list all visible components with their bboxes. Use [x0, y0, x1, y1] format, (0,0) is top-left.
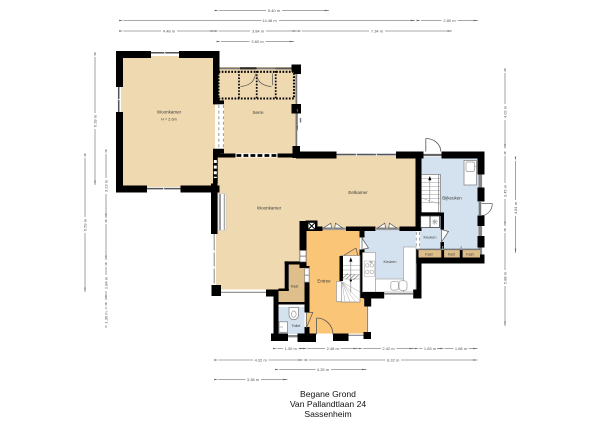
svg-text:5.88 m: 5.88 m [503, 271, 508, 284]
svg-text:3.84 m: 3.84 m [252, 28, 265, 33]
svg-text:1.36 m: 1.36 m [104, 311, 109, 324]
svg-text:7.34 m: 7.34 m [371, 28, 384, 33]
svg-text:4.81 m: 4.81 m [513, 201, 518, 214]
svg-text:Entree: Entree [317, 279, 331, 284]
svg-text:2.80 m: 2.80 m [443, 18, 456, 23]
svg-text:Eetkamer: Eetkamer [348, 190, 368, 195]
svg-text:Van Pallandtlaan 24: Van Pallandtlaan 24 [290, 399, 367, 409]
svg-text:6.59 m: 6.59 m [83, 218, 88, 231]
svg-text:2.42 m: 2.42 m [382, 346, 395, 351]
svg-text:Kast: Kast [448, 252, 455, 256]
svg-text:H = 2.6m: H = 2.6m [161, 118, 177, 122]
svg-text:Woonkamer: Woonkamer [257, 206, 282, 211]
svg-text:Bijkeuken: Bijkeuken [442, 196, 462, 201]
svg-text:8.32 m: 8.32 m [387, 358, 400, 363]
svg-text:4.25 m: 4.25 m [317, 367, 330, 372]
svg-text:14.48 m: 14.48 m [262, 18, 277, 23]
svg-text:3.23 m: 3.23 m [104, 179, 109, 192]
svg-text:Serre: Serre [252, 110, 264, 115]
svg-text:6.28 m: 6.28 m [93, 114, 98, 127]
svg-text:4.02 m: 4.02 m [503, 105, 508, 118]
svg-text:Woonkamer: Woonkamer [157, 110, 182, 115]
svg-text:3.38 m: 3.38 m [247, 377, 260, 382]
svg-text:Sassenheim: Sassenheim [304, 409, 351, 419]
svg-text:5.40 m: 5.40 m [268, 8, 281, 13]
svg-text:Kast: Kast [466, 252, 473, 256]
svg-text:Keuken: Keuken [384, 260, 397, 264]
svg-text:Keuken: Keuken [424, 236, 437, 240]
svg-text:3.60 m: 3.60 m [251, 39, 264, 44]
svg-text:3.45 m: 3.45 m [503, 184, 508, 197]
svg-text:Toilet: Toilet [292, 324, 302, 328]
svg-text:Kast: Kast [425, 252, 432, 256]
svg-text:1.68 m: 1.68 m [455, 346, 468, 351]
svg-text:1.30 m: 1.30 m [285, 346, 298, 351]
svg-text:1.84 m: 1.84 m [104, 276, 109, 289]
svg-text:4.32 m: 4.32 m [255, 358, 268, 363]
svg-text:2.48 m: 2.48 m [327, 346, 340, 351]
svg-text:1.83 m: 1.83 m [424, 346, 437, 351]
svg-text:Kast: Kast [291, 285, 300, 289]
svg-text:4.48 m: 4.48 m [163, 28, 176, 33]
svg-text:Begane Grond: Begane Grond [300, 389, 356, 399]
